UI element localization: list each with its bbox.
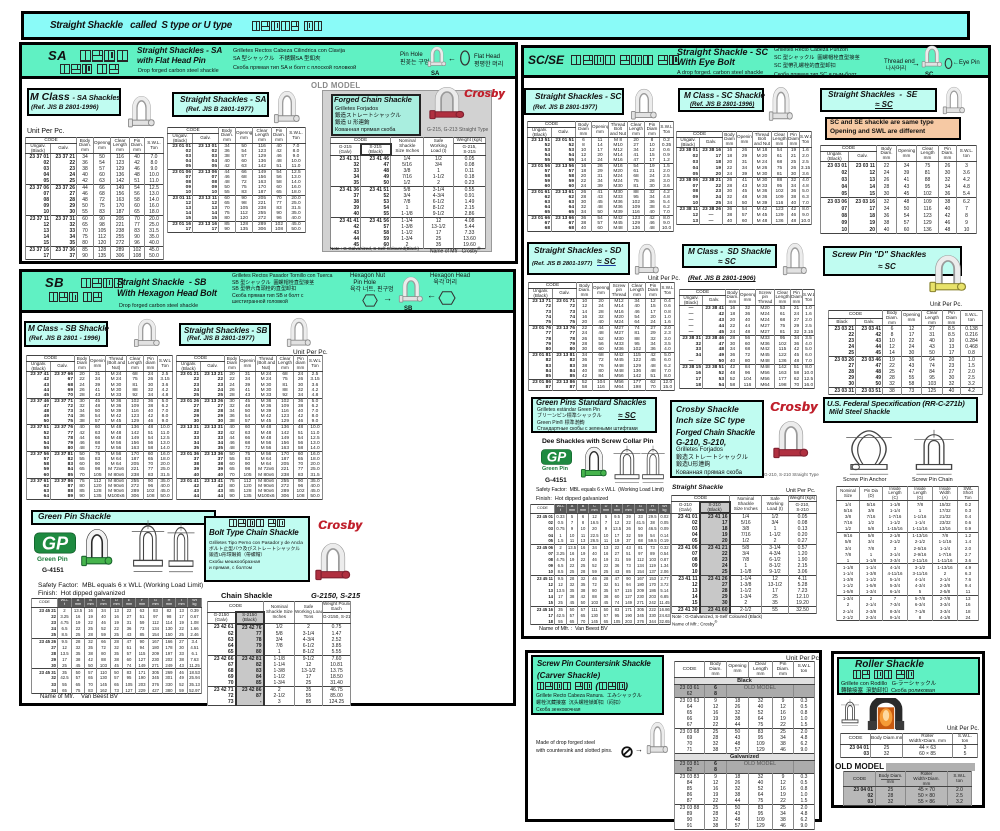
svg-text:GP: GP [547, 450, 566, 465]
svg-text:GP: GP [42, 533, 69, 553]
